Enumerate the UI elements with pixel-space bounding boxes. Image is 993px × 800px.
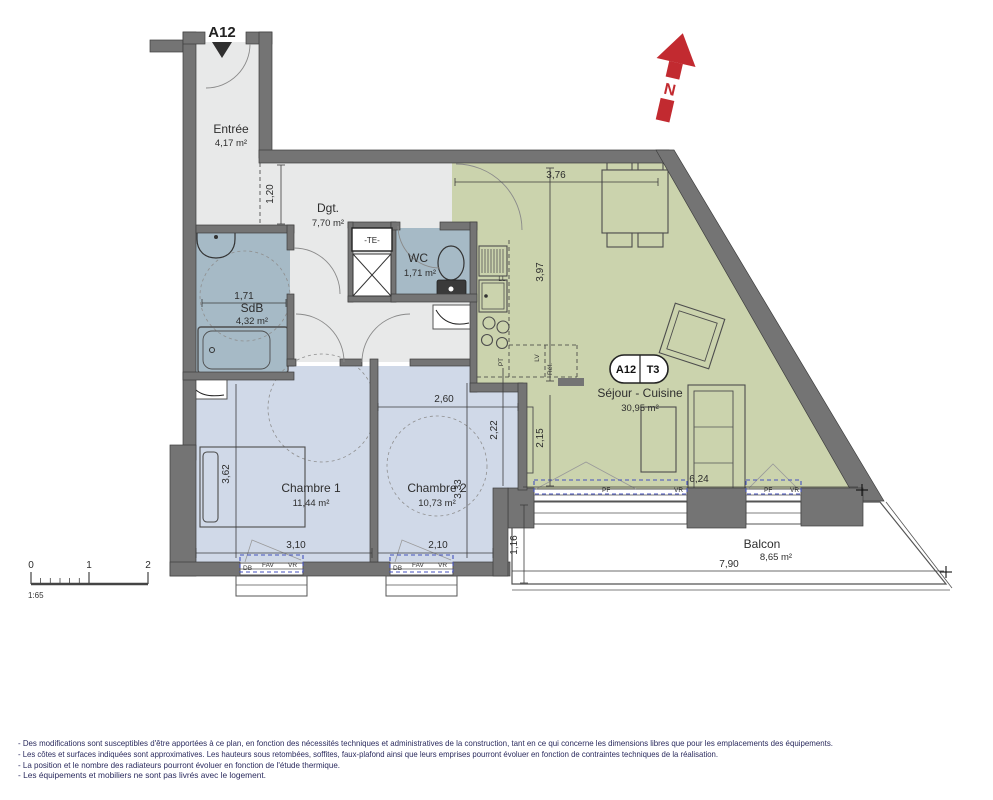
footnote-line: - Les équipements et mobiliers ne sont p… bbox=[18, 771, 266, 780]
hall-door-wall-1 bbox=[287, 359, 296, 366]
radiator-wc bbox=[433, 305, 473, 329]
scale-ratio: 1:65 bbox=[28, 591, 44, 600]
room-label-chambre1: Chambre 1 bbox=[281, 481, 341, 495]
window-label-pf: PF bbox=[602, 487, 610, 494]
floor-plan-svg: LL PT LV Réf. bbox=[0, 0, 993, 800]
room-area-entree: 4,17 m² bbox=[215, 138, 247, 149]
wc-right-wall bbox=[470, 222, 477, 392]
north-arrow-shaft-upper bbox=[666, 61, 683, 80]
sejour-bottom-wall-1 bbox=[508, 488, 534, 528]
chambre-divider-wall bbox=[370, 359, 378, 562]
room-area-chambre2: 10,73 m² bbox=[418, 498, 456, 509]
sejour-bottom-wall-2 bbox=[687, 488, 746, 528]
hall-door-wall-3 bbox=[410, 359, 475, 366]
room-label-entree: Entrée bbox=[213, 122, 249, 136]
corridor-wall-stub bbox=[150, 40, 183, 52]
room-label-sejour: Séjour - Cuisine bbox=[597, 386, 683, 400]
dim-balcon-depth: 1,16 bbox=[509, 535, 520, 555]
dining-chair bbox=[607, 233, 632, 247]
north-arrow-head-icon bbox=[657, 29, 703, 67]
room-area-balcon: 8,65 m² bbox=[760, 552, 792, 563]
unit-label: A12 bbox=[208, 24, 236, 41]
dim-sejour-bottom: 6,24 bbox=[689, 474, 709, 485]
toilet-button bbox=[449, 287, 454, 292]
window-label-fav: FAV bbox=[262, 562, 274, 569]
dim-balcon-width: 7,90 bbox=[719, 559, 739, 570]
room-area-dgt: 7,70 m² bbox=[312, 218, 344, 229]
window-label-fav: FAV bbox=[412, 562, 424, 569]
footnotes: - Des modifications sont susceptibles d'… bbox=[18, 739, 833, 780]
dim-sdb: 1,71 bbox=[234, 291, 254, 302]
entree-right-wall bbox=[259, 32, 272, 158]
wc-bottom-wall bbox=[391, 294, 477, 302]
window-label-vr: VR bbox=[790, 487, 799, 494]
dining-chair bbox=[638, 233, 663, 247]
top-wall bbox=[259, 150, 669, 163]
appliance-label-lv: LV bbox=[534, 354, 541, 362]
room-label-wc: WC bbox=[408, 251, 428, 265]
bottom-wall-2 bbox=[303, 562, 390, 576]
scale-tick-1: 1 bbox=[86, 560, 92, 571]
sink-tap-dot bbox=[214, 235, 218, 239]
dim-ch1-left: 3,62 bbox=[221, 464, 232, 484]
sdb-right-wall-upper bbox=[287, 225, 294, 250]
window-label-pf: PF bbox=[764, 487, 772, 494]
room-area-chambre1: 11,44 m² bbox=[293, 498, 330, 509]
dim-hall: 1,20 bbox=[265, 184, 276, 204]
unit-badge: A12 T3 bbox=[610, 355, 668, 383]
footnote-line: - Les côtes et surfaces indiquées sont a… bbox=[18, 750, 718, 759]
scale-tick-2: 2 bbox=[145, 560, 151, 571]
floor-plan-page: LL PT LV Réf. bbox=[0, 0, 993, 800]
north-arrow-shaft-lower bbox=[656, 98, 675, 123]
left-wall bbox=[183, 32, 196, 460]
north-label: N bbox=[662, 81, 677, 100]
toilet-bowl bbox=[438, 246, 464, 280]
sejour-jog-wall-v bbox=[518, 383, 527, 490]
window-label-vr: VR bbox=[288, 562, 297, 569]
badge-type: T3 bbox=[647, 364, 660, 376]
dim-ch2-left: 3,33 bbox=[453, 479, 464, 499]
window-sill bbox=[236, 576, 307, 596]
left-wall-jog bbox=[170, 445, 196, 576]
dim-nook: 2,15 bbox=[535, 428, 546, 448]
room-area-wc: 1,71 m² bbox=[404, 268, 436, 279]
te-wall-bottom bbox=[348, 296, 396, 302]
badge-unit: A12 bbox=[616, 364, 636, 376]
bottom-wall-1 bbox=[170, 562, 240, 576]
room-area-sdb: 4,32 m² bbox=[236, 316, 268, 327]
window-label-db: DB bbox=[243, 565, 252, 572]
room-label-balcon: Balcon bbox=[744, 537, 781, 551]
window-sill bbox=[386, 576, 457, 596]
te-wall-top bbox=[348, 222, 396, 228]
sdb-bottom-wall bbox=[183, 372, 294, 380]
dim-ch2-right: 2,22 bbox=[489, 420, 500, 440]
technical-duct: -TE- bbox=[352, 228, 392, 296]
window-label-db: DB bbox=[393, 565, 402, 572]
window-label-vr: VR bbox=[438, 562, 447, 569]
side-shelf bbox=[558, 378, 584, 386]
dim-kitchen: 3,97 bbox=[535, 262, 546, 282]
footnote-line: - La position et le nombre des radiateur… bbox=[18, 761, 340, 770]
room-label-dgt: Dgt. bbox=[317, 201, 339, 215]
footnote-line: - Des modifications sont susceptibles d'… bbox=[18, 739, 833, 748]
scale-bar: 0 1 2 1:65 bbox=[28, 560, 151, 600]
dim-ch1-width: 3,10 bbox=[286, 540, 306, 551]
te-label: -TE- bbox=[364, 236, 380, 245]
window-label-vr: VR bbox=[674, 487, 683, 494]
dim-ch2-width: 2,10 bbox=[428, 540, 448, 551]
appliance-label-ll: LL bbox=[498, 276, 506, 283]
appliance-label-pt: PT bbox=[498, 358, 505, 366]
sdb-top-wall bbox=[196, 225, 294, 233]
room-area-sejour: 30,95 m² bbox=[621, 403, 659, 414]
dim-ch2-top: 2,60 bbox=[434, 394, 454, 405]
hall-door-wall-2 bbox=[340, 359, 362, 366]
sejour-bottom-wall-3 bbox=[801, 488, 863, 526]
sejour-jog-wall-h bbox=[470, 383, 523, 392]
kitchen-sink-tap bbox=[484, 294, 488, 298]
chambre2-right-wall bbox=[493, 488, 508, 576]
appliance-label-ref: Réf. bbox=[547, 363, 554, 375]
north-arrow: N bbox=[643, 29, 702, 126]
sdb-right-wall-lower bbox=[287, 294, 294, 366]
scale-tick-0: 0 bbox=[28, 560, 34, 571]
entree-top-wall-left bbox=[183, 32, 205, 44]
dim-sejour-top: 3,76 bbox=[546, 170, 566, 181]
